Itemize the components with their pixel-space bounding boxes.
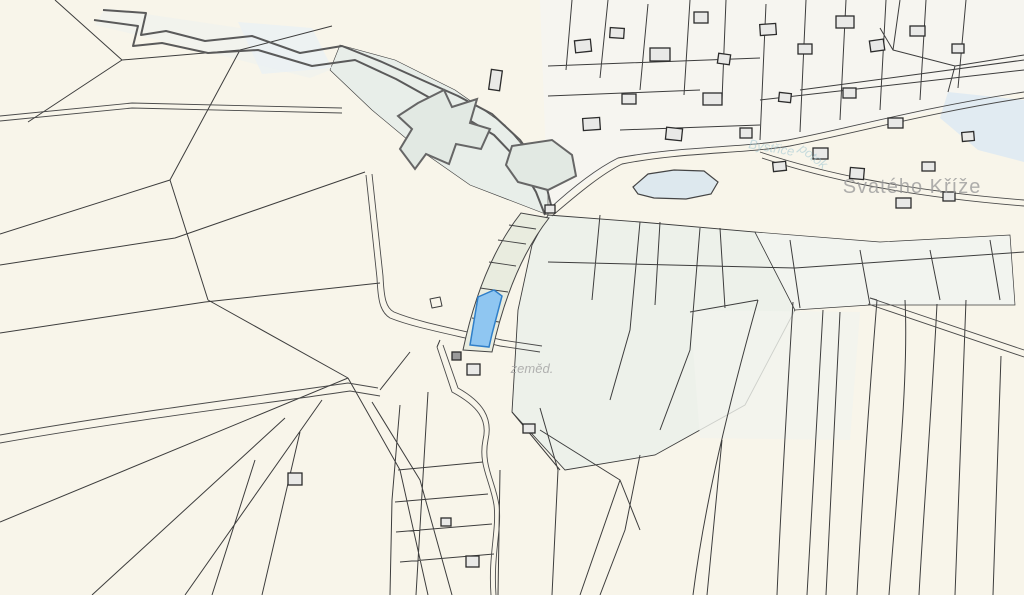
building-footprint: [717, 53, 730, 65]
building-footprint: [703, 93, 722, 105]
building-footprint: [583, 117, 601, 130]
building-footprint: [798, 44, 812, 54]
cadastral-map-canvas[interactable]: Bystřice potok Svatého Kříže zeměd.: [0, 0, 1024, 595]
building-footprint: [441, 518, 451, 526]
building-footprint: [896, 198, 911, 208]
building-footprint: [836, 16, 854, 28]
building-footprint: [545, 205, 555, 213]
building-footprint: [288, 473, 302, 485]
right-meadow-tint: [755, 232, 1015, 310]
landuse-label: zeměd.: [510, 361, 554, 376]
building-footprint: [452, 352, 461, 360]
building-footprint: [922, 162, 935, 171]
building-footprint: [952, 44, 964, 53]
building-footprint: [962, 131, 975, 141]
building-footprint: [467, 364, 480, 375]
building-footprint: [665, 127, 682, 141]
building-footprint: [466, 556, 479, 567]
building-footprint: [650, 48, 670, 61]
building-footprint: [869, 39, 884, 52]
settlement-label: Svatého Kříže: [843, 176, 982, 198]
building-footprint: [843, 88, 856, 98]
building-footprint: [523, 424, 535, 433]
building-footprint: [622, 94, 636, 104]
building-footprint: [694, 12, 708, 23]
building-footprint: [910, 26, 925, 36]
building-footprint: [779, 92, 792, 102]
building-footprint: [489, 69, 503, 90]
building-footprint: [610, 28, 625, 39]
map-viewport[interactable]: Bystřice potok Svatého Kříže zeměd.: [0, 0, 1024, 595]
building-footprint: [773, 161, 787, 171]
building-footprint: [574, 39, 591, 53]
building-footprint: [888, 118, 903, 128]
building-footprint: [760, 23, 777, 35]
